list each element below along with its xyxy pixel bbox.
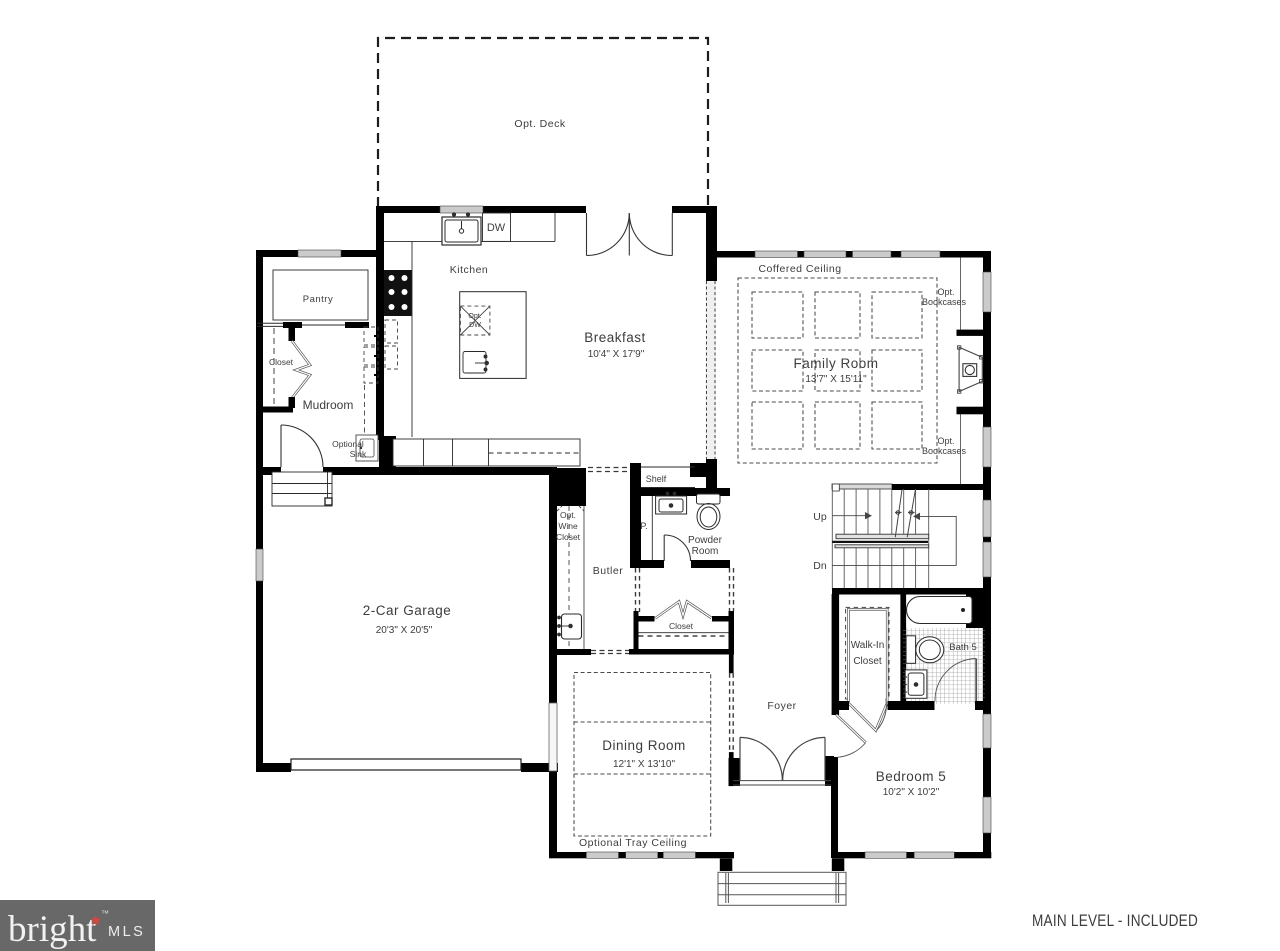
svg-text:Powder: Powder <box>688 535 723 546</box>
svg-text:Optional: Optional <box>332 439 364 449</box>
svg-text:Coffered Ceiling: Coffered Ceiling <box>758 263 841 275</box>
svg-text:13'7" X 15'11": 13'7" X 15'11" <box>805 374 867 385</box>
svg-text:™: ™ <box>101 909 109 918</box>
svg-text:Shelf: Shelf <box>646 474 667 484</box>
svg-text:Dining Room: Dining Room <box>602 738 686 753</box>
svg-text:10'4" X 17'9": 10'4" X 17'9" <box>588 349 645 360</box>
svg-text:Closet: Closet <box>669 621 694 631</box>
svg-text:Opt.: Opt. <box>468 313 481 320</box>
svg-text:Foyer: Foyer <box>767 700 796 712</box>
svg-text:Mudroom: Mudroom <box>303 398 354 412</box>
svg-text:MLS: MLS <box>108 924 145 940</box>
svg-text:Opt.: Opt. <box>937 287 954 297</box>
svg-text:Bedroom 5: Bedroom 5 <box>876 769 947 784</box>
svg-text:Opt.: Opt. <box>560 510 576 520</box>
svg-text:20'3" X 20'5": 20'3" X 20'5" <box>376 625 433 636</box>
svg-text:10'2" X 10'2": 10'2" X 10'2" <box>883 787 940 798</box>
svg-text:Wine: Wine <box>558 521 578 531</box>
svg-text:Sink: Sink <box>350 449 367 459</box>
svg-text:Up: Up <box>813 511 827 523</box>
svg-text:12'1" X 13'10": 12'1" X 13'10" <box>613 759 676 770</box>
svg-text:Opt. Deck: Opt. Deck <box>514 118 565 130</box>
svg-text:Closet: Closet <box>556 532 581 542</box>
svg-text:Closet: Closet <box>853 656 882 667</box>
svg-text:Closet: Closet <box>269 357 294 367</box>
svg-text:MAIN LEVEL - INCLUDED: MAIN LEVEL - INCLUDED <box>1032 912 1198 931</box>
svg-text:2-Car Garage: 2-Car Garage <box>363 603 452 618</box>
svg-text:Optional Tray Ceiling: Optional Tray Ceiling <box>579 837 687 849</box>
svg-text:Kitchen: Kitchen <box>450 264 489 276</box>
svg-text:Opt.: Opt. <box>937 436 954 446</box>
svg-text:Pantry: Pantry <box>303 294 333 305</box>
svg-text:P.: P. <box>640 521 647 531</box>
svg-text:Room: Room <box>692 546 719 557</box>
svg-text:Bookcases: Bookcases <box>922 297 967 307</box>
svg-text:Family Room: Family Room <box>793 356 878 371</box>
svg-text:Walk-In: Walk-In <box>851 640 885 651</box>
svg-text:DW: DW <box>469 322 481 329</box>
svg-text:bright: bright <box>8 909 97 950</box>
svg-text:Bookcases: Bookcases <box>922 446 967 456</box>
svg-text:Dn: Dn <box>813 560 827 572</box>
svg-text:Butler: Butler <box>593 565 623 577</box>
svg-text:Bath 5: Bath 5 <box>949 642 976 653</box>
svg-text:Breakfast: Breakfast <box>584 330 646 345</box>
svg-text:DW: DW <box>487 222 506 234</box>
